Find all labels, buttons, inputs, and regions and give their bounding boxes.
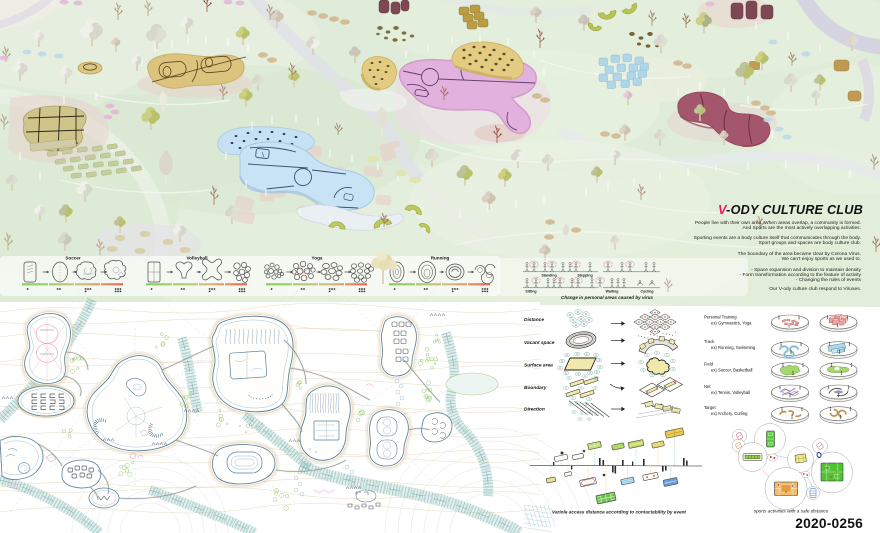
svg-text:Yoga: Yoga [312, 256, 323, 261]
svg-text:Track: Track [704, 339, 715, 344]
svg-text:Net: Net [704, 384, 711, 389]
svg-text:Sport groups and spaces are bo: Sport groups and spaces are body culture… [759, 240, 862, 246]
svg-text:ex) Tennis, Volleyball: ex) Tennis, Volleyball [711, 390, 750, 395]
svg-text:Soccer: Soccer [65, 256, 81, 261]
svg-text:Boundary: Boundary [524, 385, 547, 391]
svg-text:Stepping: Stepping [577, 274, 592, 278]
svg-text:And Sports are the most active: And Sports are the most actively overlap… [742, 225, 861, 231]
svg-text:Our V-ody culture club respond: Our V-ody culture club respond to Viruse… [769, 286, 861, 292]
svg-text:Cycling: Cycling [641, 290, 654, 294]
svg-text:2020-0256: 2020-0256 [795, 516, 863, 531]
svg-text:Standing: Standing [541, 274, 556, 278]
svg-text:- Changing the rules of event: - Changing the rules of events [796, 277, 862, 283]
svg-text:sports activities with a safe: sports activities with a safe distance [754, 509, 829, 514]
svg-text:Field: Field [704, 362, 714, 367]
svg-text:Running: Running [431, 256, 450, 261]
svg-text:Volleyball: Volleyball [186, 256, 207, 261]
svg-text:Surface area: Surface area [524, 363, 553, 369]
svg-text:Waiting: Waiting [606, 290, 619, 294]
svg-text:Vacant space: Vacant space [524, 340, 555, 346]
svg-text:Direction: Direction [524, 407, 545, 413]
svg-text:Variole access distance accor: Variole access distance according to con… [552, 510, 686, 515]
svg-text:ex) Running, Swimming: ex) Running, Swimming [711, 345, 756, 350]
svg-text:ex) Gymnastics, Yoga: ex) Gymnastics, Yoga [711, 321, 752, 326]
svg-text:We can't enjoy sports as we us: We can't enjoy sports as we used to. [782, 256, 861, 262]
svg-text:ex) Soccer, Basketball: ex) Soccer, Basketball [711, 368, 752, 373]
svg-text:Target: Target [704, 405, 716, 410]
svg-text:ex) Archery, Curling: ex) Archery, Curling [711, 411, 748, 416]
svg-text:Change in personal areas cause: Change in personal areas caused by virus [561, 295, 653, 300]
svg-text:V-ODY CULTURE CLUB: V-ODY CULTURE CLUB [718, 203, 863, 217]
svg-text:Sitting: Sitting [525, 290, 536, 294]
svg-text:Personal Training: Personal Training [704, 315, 737, 320]
svg-text:Distance: Distance [524, 317, 544, 323]
